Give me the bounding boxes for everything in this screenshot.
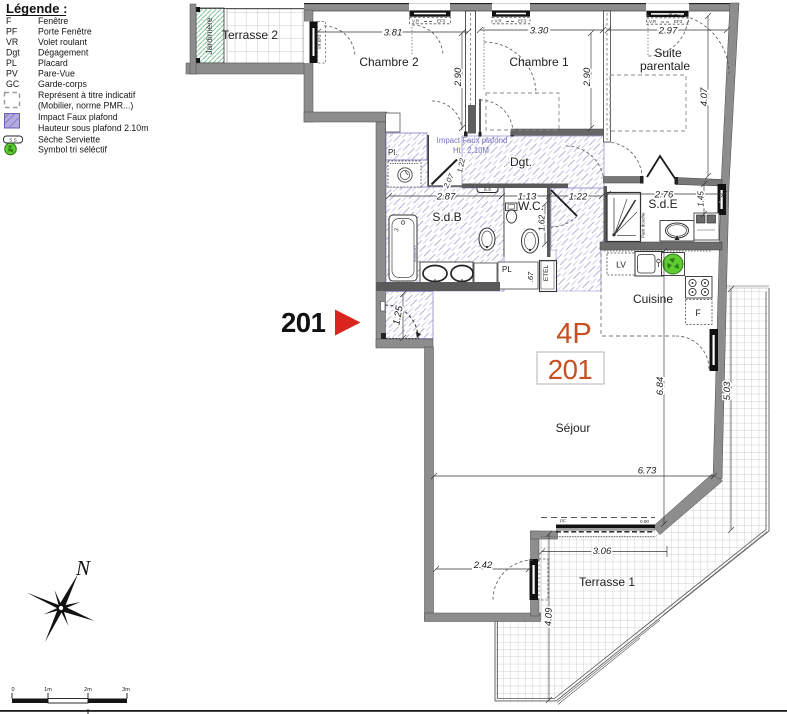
svg-text:LV: LV [616,260,626,270]
svg-text:Chambre 2: Chambre 2 [359,55,419,69]
svg-text:PL: PL [6,58,17,68]
svg-text:Pare douche: Pare douche [641,212,646,238]
svg-text:VR EF3: VR EF3 [317,34,322,49]
svg-text:6.73: 6.73 [638,466,657,477]
svg-text:5.03: 5.03 [722,381,733,400]
svg-text:Jardinière: Jardinière [204,17,214,55]
svg-text:Sèche Serviette: Sèche Serviette [38,135,100,145]
svg-text:EF3: EF3 [437,19,446,24]
svg-text:3.06: 3.06 [593,546,612,557]
svg-text:(Mobilier, norme PMR...): (Mobilier, norme PMR...) [38,101,133,111]
svg-text:W.C.: W.C. [518,199,544,213]
svg-text:Terrasse 2: Terrasse 2 [222,28,278,42]
svg-text:S.S: S.S [9,138,16,143]
svg-text:Impact Faux plafond: Impact Faux plafond [437,136,508,145]
svg-text:Symbol tri séléctif: Symbol tri séléctif [38,145,107,155]
svg-text:V.R: V.R [412,19,420,24]
svg-text:Terrasse 1: Terrasse 1 [579,575,635,589]
svg-text:2.90: 2.90 [453,67,464,87]
svg-text:S.d.B: S.d.B [432,210,461,224]
svg-text:V.R: V.R [495,19,503,24]
svg-text:Cuisine: Cuisine [633,292,673,306]
svg-text:V.R: V.R [649,19,657,24]
svg-text:Ht : 2.10M: Ht : 2.10M [453,146,489,155]
svg-text:1.45: 1.45 [697,191,706,207]
svg-text:6.84: 6.84 [655,377,666,396]
svg-text:201: 201 [281,307,326,338]
svg-text:Légende :: Légende : [6,1,67,16]
svg-text:2.90: 2.90 [582,67,593,87]
svg-text:ETEL: ETEL [543,264,550,281]
svg-text:Porte Fenêtre: Porte Fenêtre [38,27,92,37]
svg-text:F: F [695,308,701,318]
svg-text:PF: PF [6,27,18,37]
svg-text:201: 201 [548,354,592,385]
svg-text:3.81: 3.81 [384,28,403,39]
svg-text:VR: VR [6,37,18,47]
svg-text:Placard: Placard [38,58,68,68]
svg-text:1m: 1m [44,687,52,693]
svg-text:Volet roulant: Volet roulant [38,37,87,47]
svg-text:Séjour: Séjour [556,421,591,435]
svg-text:EF3: EF3 [518,19,527,24]
svg-text:0.90: 0.90 [640,519,649,524]
svg-text:F: F [6,16,12,26]
svg-text:Dgt.: Dgt. [510,155,532,169]
svg-text:2.87: 2.87 [436,192,456,203]
svg-text:2m: 2m [84,687,92,693]
svg-text:Baignoire: Baignoire [412,244,417,262]
svg-text:3.30: 3.30 [530,26,549,37]
svg-text:.67: .67 [526,271,535,282]
svg-text:Pare-Vue: Pare-Vue [38,69,75,79]
svg-text:GC: GC [6,79,20,89]
svg-text:Fenêtre: Fenêtre [38,16,68,26]
svg-text:Hauteur sous plafond 2.10m: Hauteur sous plafond 2.10m [38,123,149,133]
svg-text:PL: PL [502,265,512,274]
svg-text:Dégagement: Dégagement [38,48,89,58]
svg-text:4P: 4P [556,318,591,350]
svg-text:Dgt: Dgt [6,48,20,58]
svg-text:EF3: EF3 [674,19,683,24]
svg-text:4.09: 4.09 [543,607,555,627]
svg-text:2.42: 2.42 [473,560,493,571]
svg-text:3m: 3m [122,687,130,693]
svg-text:PF: PF [560,519,566,524]
svg-text:1.62: 1.62 [537,214,547,231]
svg-text:4.07: 4.07 [699,87,710,106]
svg-text:N: N [75,556,91,580]
svg-text:0: 0 [11,687,14,693]
svg-text:Impact Faux plafond: Impact Faux plafond [38,112,118,122]
svg-text:1.22: 1.22 [569,192,588,203]
svg-text:Garde-corps: Garde-corps [38,79,87,89]
svg-text:Pl.: Pl. [388,148,397,157]
svg-text:Représent à titre indicatif: Représent à titre indicatif [38,90,136,100]
svg-text:PV: PV [6,69,18,79]
svg-text:2.97: 2.97 [658,26,678,37]
svg-text:Chambre 1: Chambre 1 [509,55,569,69]
svg-text:parentale: parentale [640,59,690,73]
svg-text:Suite: Suite [654,46,682,60]
svg-text:S.d.E: S.d.E [648,197,677,211]
